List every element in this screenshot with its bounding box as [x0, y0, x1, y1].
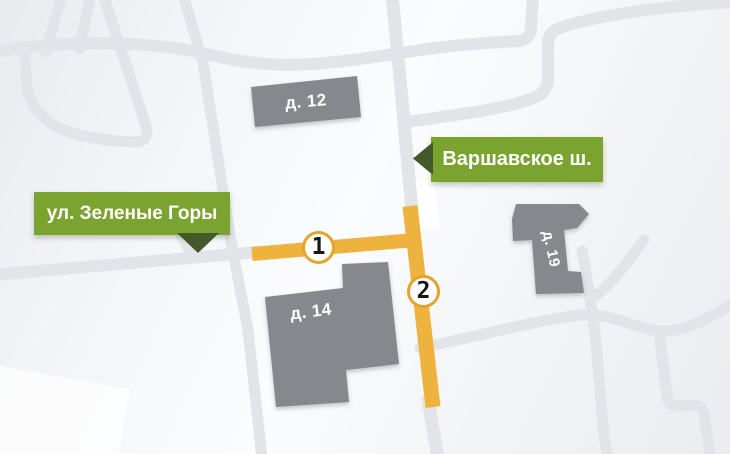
street-label-varshavskoe-text: Варшавское ш.: [442, 148, 591, 171]
route-marker-2: 2: [407, 275, 440, 308]
road-s-curve-northeast: [406, 2, 730, 122]
road-southeast-curl: [659, 332, 711, 454]
route-marker-1: 1: [302, 231, 335, 264]
road-zelenye-gory-west: [0, 252, 258, 275]
route-marker-2-number: 2: [417, 280, 431, 303]
background-patch: [0, 363, 130, 454]
road-east-branch: [592, 240, 644, 298]
street-label-zelenye-gory-text: ул. Зеленые Горы: [47, 203, 218, 225]
road-varshavskoe-south: [428, 400, 438, 454]
map-canvas: д. 12 д. 14 д. 19 ул. Зеленые Горы Варша…: [0, 0, 730, 454]
road-south-from-junction: [233, 252, 262, 454]
route-marker-1-number: 1: [312, 236, 326, 259]
street-label-zelenye-gory: ул. Зеленые Горы: [34, 192, 230, 235]
building-d12-label: д. 12: [284, 90, 327, 114]
building-d14-shape: [265, 262, 399, 407]
road-varshavskoe-north: [392, 0, 412, 212]
street-label-varshavskoe: Варшавское ш.: [431, 137, 603, 182]
road-east-horizontal: [420, 303, 730, 348]
